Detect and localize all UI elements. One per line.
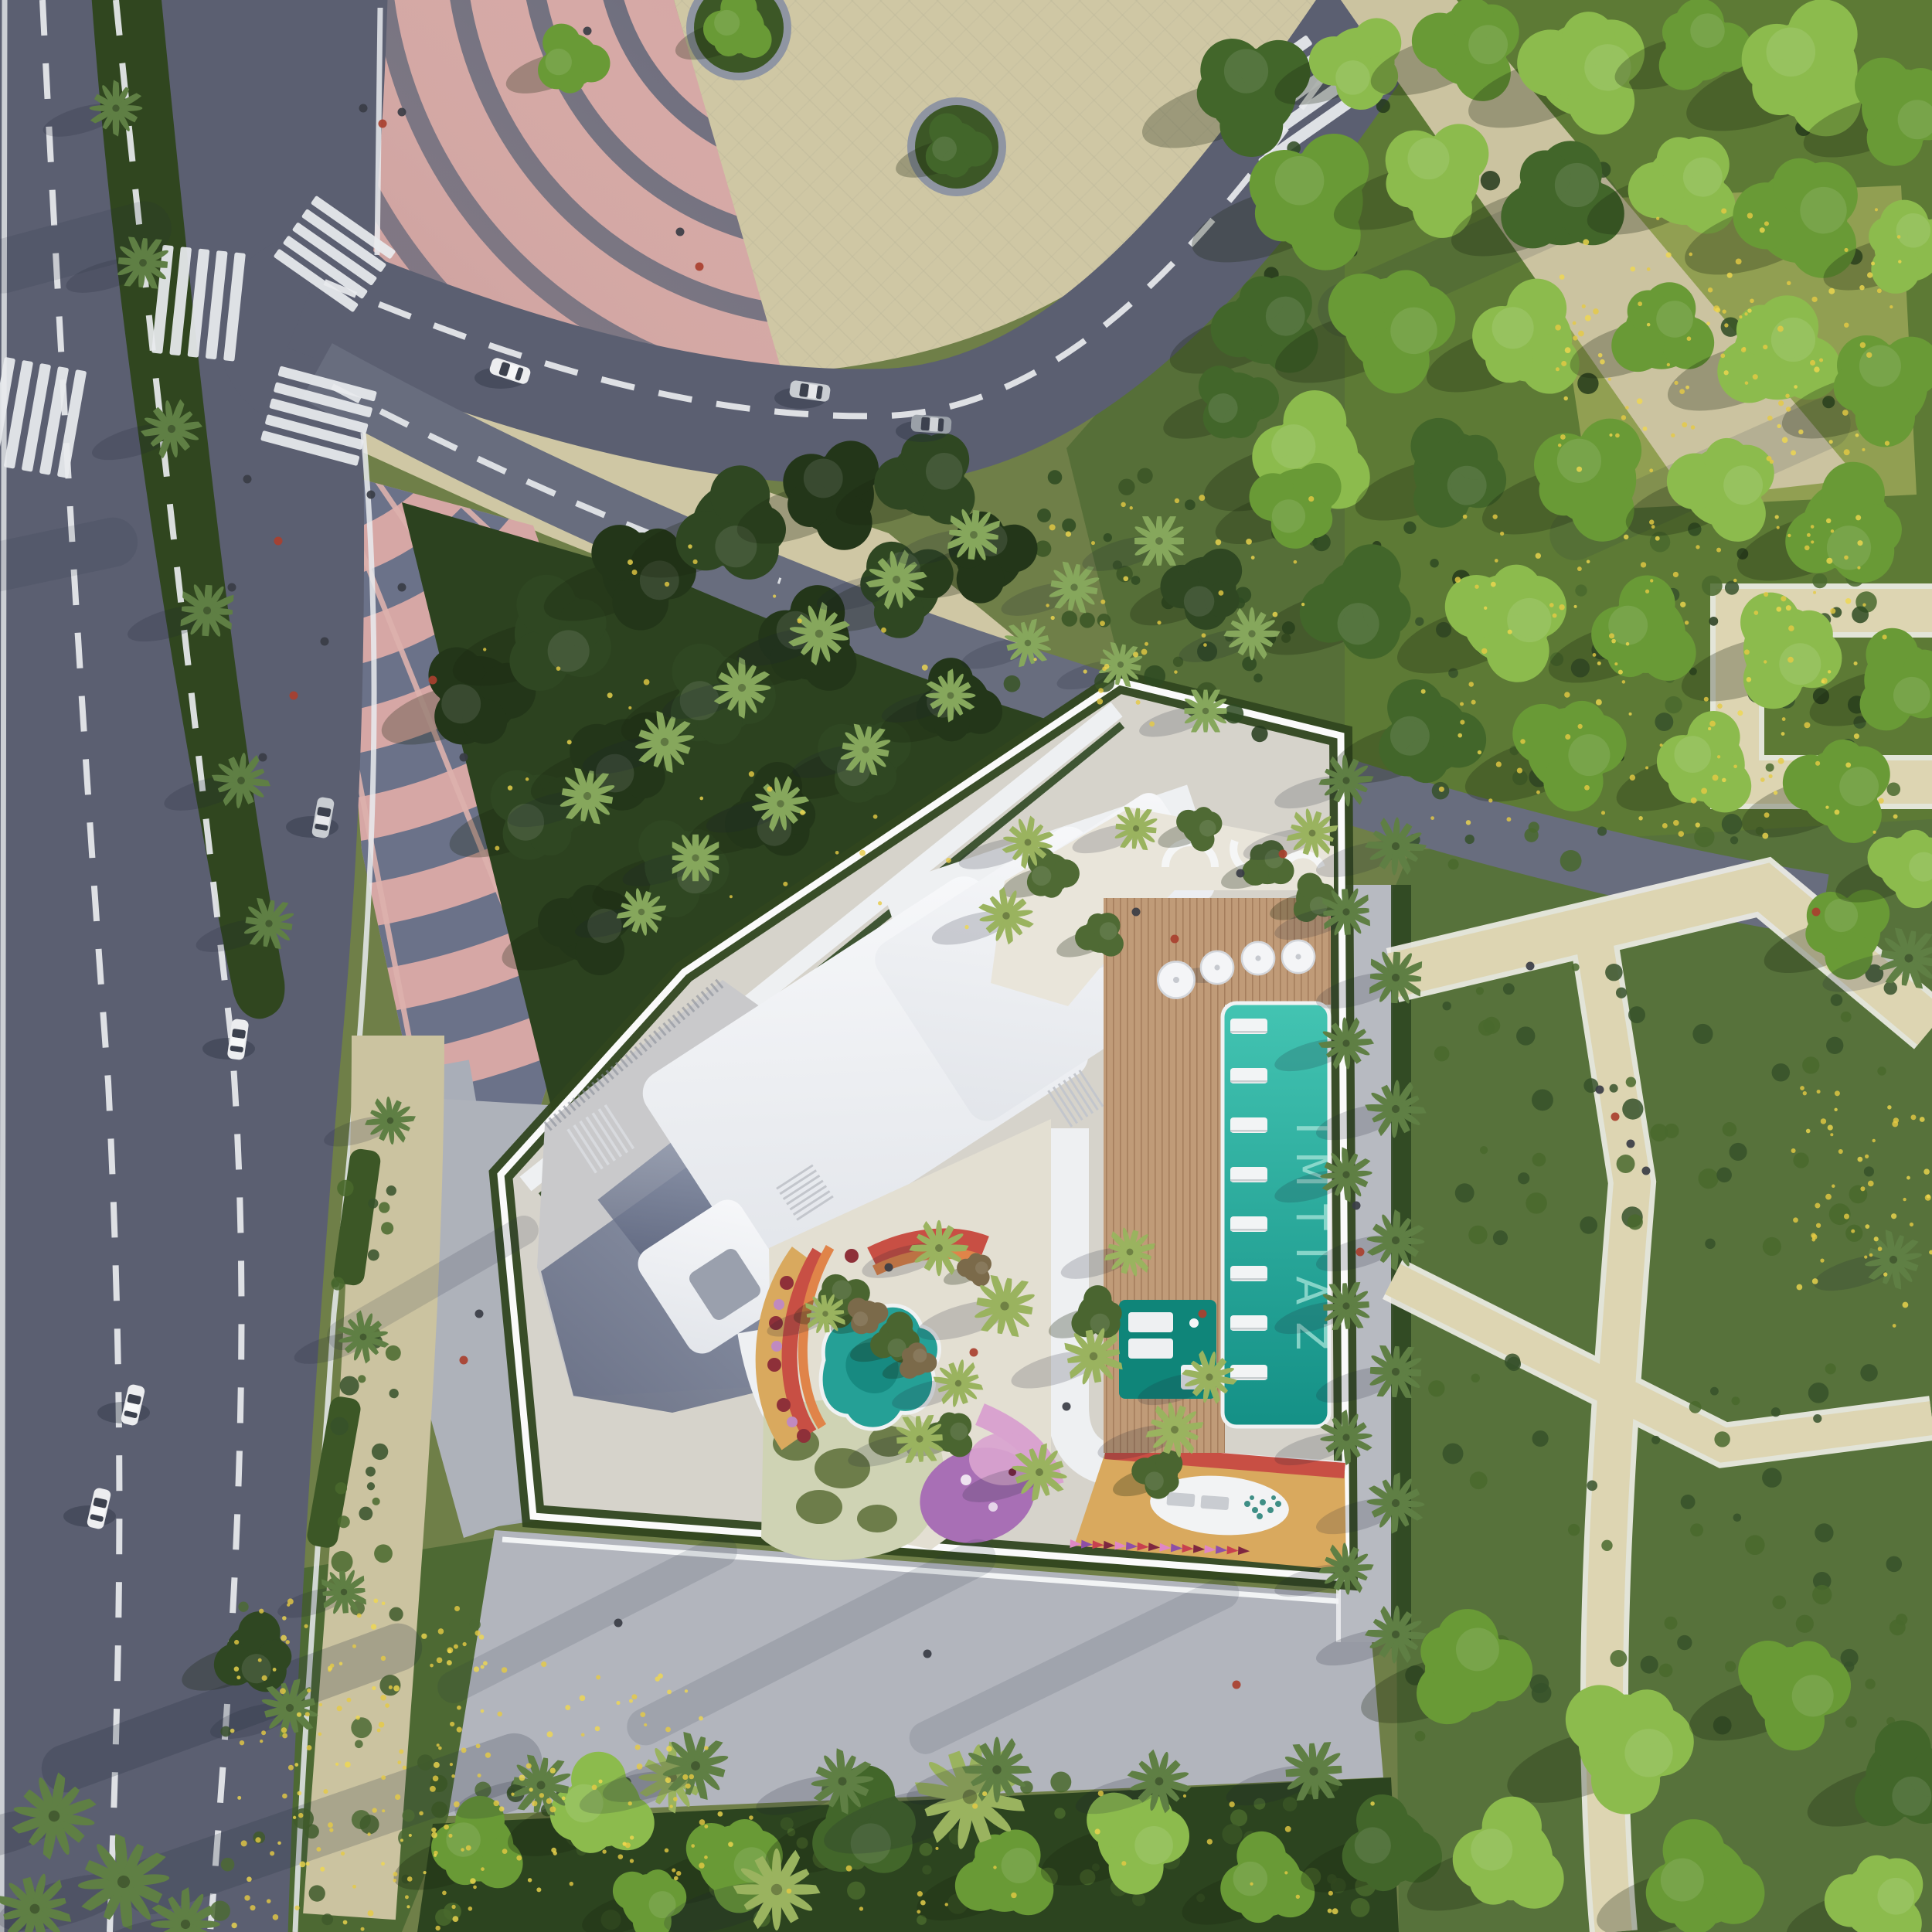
wildflower bbox=[1674, 381, 1678, 385]
wildflower bbox=[343, 1920, 348, 1925]
wildflower bbox=[1803, 1091, 1807, 1095]
wildflower bbox=[261, 1730, 266, 1735]
shrub bbox=[1532, 1089, 1553, 1111]
shrub bbox=[1080, 613, 1095, 628]
person bbox=[398, 108, 406, 117]
wildflower bbox=[846, 1866, 852, 1872]
shrub bbox=[470, 1619, 481, 1630]
shrub bbox=[1690, 1523, 1703, 1536]
wildflower bbox=[1717, 755, 1720, 758]
wildflower bbox=[1724, 370, 1729, 375]
wildflower bbox=[462, 1642, 466, 1646]
wildflower bbox=[1864, 1255, 1867, 1258]
wildflower bbox=[685, 1784, 691, 1789]
wildflower bbox=[1183, 1794, 1186, 1798]
wildflower bbox=[1370, 1801, 1375, 1806]
shrub bbox=[335, 1482, 348, 1495]
wildflower bbox=[917, 1891, 923, 1896]
wildflower bbox=[1615, 434, 1620, 438]
wildflower bbox=[1721, 208, 1726, 213]
wildflower bbox=[1097, 699, 1103, 705]
wildflower bbox=[1121, 1861, 1126, 1866]
wildflower bbox=[551, 1848, 556, 1853]
wildflower bbox=[298, 1791, 302, 1796]
shrub bbox=[1351, 1898, 1370, 1917]
shrub bbox=[1144, 665, 1165, 687]
wildflower bbox=[1872, 1139, 1875, 1142]
shrub bbox=[1716, 1168, 1732, 1183]
wildflower bbox=[1471, 700, 1476, 705]
wildflower bbox=[1811, 540, 1814, 543]
wildflower bbox=[1785, 393, 1790, 398]
wildflower bbox=[473, 1886, 477, 1889]
shrub bbox=[1518, 1172, 1529, 1184]
wildflower bbox=[1596, 699, 1602, 706]
wildflower bbox=[946, 858, 951, 863]
wildflower bbox=[1100, 600, 1105, 604]
wildflower bbox=[1577, 467, 1582, 472]
wildflower bbox=[1696, 545, 1699, 549]
wildflower bbox=[241, 1840, 247, 1846]
wildflower bbox=[922, 665, 928, 671]
wildflower bbox=[632, 570, 638, 575]
shrub bbox=[381, 1222, 393, 1234]
wildflower bbox=[1747, 677, 1752, 682]
wildflower bbox=[1786, 406, 1791, 411]
wildflower bbox=[1782, 717, 1786, 721]
shrub bbox=[1651, 1436, 1660, 1444]
wildflower bbox=[699, 1716, 703, 1721]
wildflower bbox=[1869, 1253, 1873, 1257]
wildflower bbox=[1593, 308, 1599, 315]
wildflower bbox=[580, 1696, 586, 1702]
wildflower bbox=[294, 1906, 299, 1910]
shrub bbox=[386, 1345, 401, 1361]
wildflower bbox=[407, 1876, 413, 1882]
wildflower bbox=[1680, 602, 1685, 607]
wildflower bbox=[281, 1635, 287, 1641]
shrub bbox=[1529, 821, 1539, 832]
wildflower bbox=[409, 1834, 412, 1837]
wildflower bbox=[1920, 1117, 1925, 1122]
shrub bbox=[1478, 1019, 1495, 1036]
wildflower bbox=[541, 1662, 546, 1667]
wildflower bbox=[749, 1815, 753, 1820]
wildflower bbox=[1583, 239, 1589, 245]
wildflower bbox=[682, 1774, 688, 1780]
wildflower bbox=[1860, 1186, 1865, 1191]
shrub bbox=[358, 1375, 366, 1383]
wildflower bbox=[667, 1689, 672, 1694]
shrub bbox=[1230, 1809, 1247, 1826]
shrub bbox=[1503, 983, 1515, 995]
wildflower bbox=[352, 1885, 356, 1889]
wildflower bbox=[403, 1766, 406, 1770]
wildflower bbox=[1778, 400, 1784, 406]
wildflower bbox=[547, 1731, 553, 1737]
wildflower bbox=[717, 1811, 723, 1817]
shrub bbox=[1132, 1893, 1145, 1906]
wildflower bbox=[237, 1796, 241, 1800]
wildflower bbox=[382, 1809, 385, 1812]
wildflower bbox=[1927, 1194, 1930, 1198]
shrub bbox=[1532, 1430, 1549, 1447]
wildflower bbox=[1812, 1234, 1818, 1240]
wildflower bbox=[405, 1895, 409, 1899]
wildflower bbox=[1660, 743, 1663, 747]
wildflower bbox=[1777, 424, 1781, 428]
wildflower bbox=[372, 1808, 376, 1812]
wildflower bbox=[1708, 727, 1711, 730]
wildflower bbox=[1649, 519, 1654, 524]
shrub bbox=[1251, 726, 1267, 742]
shrub bbox=[1730, 836, 1738, 844]
wildflower bbox=[1141, 649, 1148, 655]
shrub bbox=[1710, 1387, 1719, 1396]
wildflower bbox=[1704, 697, 1709, 702]
wildflower bbox=[397, 1760, 401, 1764]
wildflower bbox=[1484, 607, 1487, 610]
shrub bbox=[1699, 1168, 1719, 1189]
wildflower bbox=[1460, 702, 1464, 706]
shrub bbox=[402, 1809, 414, 1821]
wildflower bbox=[607, 692, 613, 698]
shrub bbox=[1403, 522, 1416, 534]
wildflower bbox=[1903, 1198, 1906, 1201]
wildflower bbox=[1825, 805, 1828, 808]
shrub bbox=[1808, 1383, 1829, 1403]
shrub bbox=[1689, 1401, 1702, 1413]
shrub bbox=[331, 1277, 344, 1290]
person bbox=[429, 676, 437, 685]
shrub bbox=[1455, 1183, 1475, 1202]
wildflower bbox=[1455, 577, 1461, 583]
wildflower bbox=[1753, 374, 1758, 379]
wildflower bbox=[270, 1851, 274, 1855]
wildflower bbox=[1584, 785, 1590, 791]
wildflower bbox=[797, 618, 801, 623]
wildflower bbox=[1727, 273, 1733, 278]
shrub bbox=[1242, 657, 1257, 672]
wildflower bbox=[435, 1926, 440, 1930]
shrub bbox=[1723, 1122, 1737, 1137]
wildflower bbox=[685, 1689, 688, 1692]
wildflower bbox=[1130, 506, 1133, 509]
wildflower bbox=[1760, 777, 1765, 782]
wildflower bbox=[1775, 515, 1779, 519]
wildflower bbox=[393, 1879, 396, 1883]
wildflower bbox=[1563, 396, 1568, 401]
wildflower bbox=[423, 1871, 426, 1874]
wildflower bbox=[1832, 1185, 1835, 1189]
wildflower bbox=[382, 1601, 386, 1605]
person bbox=[460, 1356, 468, 1365]
wildflower bbox=[1898, 260, 1901, 263]
wildflower bbox=[1787, 657, 1794, 663]
wildflower bbox=[1643, 427, 1648, 431]
wildflower bbox=[399, 1749, 403, 1753]
wildflower bbox=[1860, 342, 1866, 348]
wildflower bbox=[379, 1722, 385, 1728]
wildflower bbox=[1724, 323, 1728, 327]
wildflower bbox=[1825, 1194, 1832, 1200]
wildflower bbox=[1844, 1214, 1849, 1219]
wildflower bbox=[728, 1842, 733, 1847]
wildflower bbox=[704, 1855, 708, 1859]
shrub bbox=[1860, 1364, 1877, 1381]
wildflower bbox=[1585, 315, 1591, 321]
wildflower bbox=[635, 1745, 641, 1750]
person bbox=[614, 1619, 623, 1628]
wildflower bbox=[1328, 1891, 1333, 1896]
shrub bbox=[238, 1602, 248, 1612]
wildflower bbox=[434, 1762, 440, 1768]
wildflower bbox=[1781, 732, 1785, 736]
person bbox=[228, 583, 236, 592]
shrub bbox=[1468, 1226, 1487, 1244]
wildflower bbox=[1857, 540, 1862, 546]
wildflower bbox=[1104, 664, 1110, 669]
person bbox=[379, 120, 387, 128]
wildflower bbox=[1573, 335, 1577, 340]
shrub bbox=[386, 1185, 396, 1196]
wildflower bbox=[1774, 791, 1777, 794]
wildflower bbox=[282, 1733, 287, 1739]
shrub bbox=[293, 1808, 314, 1829]
wildflower bbox=[1202, 633, 1206, 638]
person bbox=[359, 104, 368, 113]
person bbox=[259, 753, 267, 762]
wildflower bbox=[1691, 425, 1695, 429]
wildflower bbox=[964, 925, 968, 929]
shrub bbox=[1887, 782, 1901, 796]
wildflower bbox=[345, 1762, 351, 1768]
wildflower bbox=[1892, 1121, 1898, 1127]
wildflower bbox=[1564, 692, 1570, 697]
wildflower bbox=[1556, 367, 1560, 371]
wildflower bbox=[1691, 798, 1697, 804]
wildflower bbox=[1878, 798, 1883, 804]
wildflower bbox=[773, 594, 776, 597]
wildflower bbox=[1629, 713, 1632, 716]
wildflower bbox=[1747, 308, 1751, 312]
wildflower bbox=[935, 1847, 938, 1850]
shrub bbox=[1560, 850, 1582, 872]
wildflower bbox=[1911, 1114, 1917, 1120]
wildflower bbox=[497, 1712, 502, 1717]
shrub bbox=[1896, 1614, 1907, 1625]
wildflower bbox=[361, 1927, 365, 1931]
wildflower bbox=[1874, 1236, 1879, 1241]
wildflower bbox=[1887, 1105, 1891, 1109]
person bbox=[1236, 869, 1245, 878]
shrub bbox=[847, 1882, 865, 1900]
shrub bbox=[1852, 607, 1869, 624]
shrub bbox=[1434, 1046, 1450, 1062]
shrub bbox=[1628, 1006, 1645, 1023]
person bbox=[1611, 1113, 1620, 1121]
wildflower bbox=[1777, 526, 1780, 529]
person bbox=[475, 1310, 484, 1318]
shrub bbox=[1772, 1595, 1786, 1609]
wildflower bbox=[1284, 1871, 1287, 1874]
wildflower bbox=[749, 771, 754, 777]
shrub bbox=[1605, 964, 1622, 981]
wildflower bbox=[481, 1867, 485, 1871]
wildflower bbox=[330, 1663, 334, 1667]
wildflower bbox=[1875, 208, 1878, 211]
wildflower bbox=[1903, 1302, 1909, 1308]
wildflower bbox=[532, 1801, 537, 1806]
wildflower bbox=[549, 1806, 556, 1812]
wildflower bbox=[234, 1666, 240, 1672]
wildflower bbox=[1744, 649, 1750, 655]
wildflower bbox=[1555, 325, 1561, 331]
wildflower bbox=[704, 1825, 708, 1828]
person bbox=[1171, 935, 1179, 944]
wildflower bbox=[1647, 323, 1651, 327]
wildflower bbox=[1821, 680, 1825, 684]
shrub bbox=[1617, 1155, 1635, 1173]
wildflower bbox=[674, 1876, 679, 1881]
shrub bbox=[1692, 1024, 1713, 1044]
wildflower bbox=[859, 1906, 863, 1910]
wildflower bbox=[293, 1816, 296, 1819]
wildflower bbox=[1478, 750, 1481, 754]
wildflower bbox=[1051, 616, 1055, 620]
wildflower bbox=[367, 1832, 370, 1835]
wildflower bbox=[1597, 662, 1601, 665]
wildflower bbox=[1815, 761, 1820, 766]
person bbox=[1812, 908, 1821, 917]
shrub bbox=[1415, 617, 1423, 626]
wildflower bbox=[1838, 1149, 1843, 1154]
wildflower bbox=[485, 1753, 491, 1758]
shrub bbox=[1665, 696, 1682, 713]
shrub bbox=[1705, 1239, 1715, 1249]
wildflower bbox=[1500, 532, 1504, 536]
wildflower bbox=[1720, 353, 1725, 358]
wildflower bbox=[431, 1828, 436, 1832]
wildflower bbox=[665, 1777, 672, 1784]
shrub bbox=[1730, 1143, 1747, 1161]
wildflower bbox=[1145, 642, 1148, 646]
wildflower bbox=[1820, 1259, 1824, 1263]
shrub bbox=[1443, 1444, 1464, 1464]
wildflower bbox=[1011, 1893, 1016, 1898]
shrub bbox=[1733, 1513, 1742, 1522]
wildflower bbox=[1862, 448, 1865, 451]
wildflower bbox=[1611, 639, 1616, 644]
wildflower bbox=[982, 1791, 987, 1796]
wildflower bbox=[1609, 434, 1612, 437]
shrub bbox=[1841, 1012, 1852, 1022]
wildflower bbox=[1133, 651, 1138, 657]
wildflower bbox=[319, 1703, 322, 1706]
person bbox=[1526, 962, 1535, 971]
wildflower bbox=[1149, 721, 1155, 726]
shrub bbox=[1812, 1585, 1832, 1604]
shrub bbox=[1771, 1407, 1781, 1417]
wildflower bbox=[1246, 539, 1252, 545]
shrub bbox=[340, 1376, 359, 1396]
wildflower bbox=[470, 1878, 476, 1884]
shrub bbox=[1448, 859, 1459, 869]
wildflower bbox=[468, 1906, 473, 1911]
shrub bbox=[1641, 1656, 1658, 1674]
shrub bbox=[1516, 1026, 1535, 1045]
wildflower bbox=[859, 850, 866, 856]
shrub bbox=[1772, 1063, 1791, 1082]
wildflower bbox=[1800, 1086, 1804, 1090]
wildflower bbox=[231, 1923, 236, 1928]
shrub bbox=[1793, 1152, 1808, 1168]
shrub bbox=[1884, 981, 1897, 995]
shrub bbox=[1722, 814, 1743, 835]
wildflower bbox=[528, 1878, 532, 1882]
wildflower bbox=[475, 1631, 481, 1636]
wildflower bbox=[1845, 598, 1852, 604]
wildflower bbox=[1708, 287, 1713, 293]
wildflower bbox=[1834, 1108, 1837, 1111]
wildflower bbox=[1804, 546, 1810, 551]
wildflower bbox=[511, 1793, 514, 1796]
shrub bbox=[1568, 1524, 1580, 1536]
shrub bbox=[1845, 1225, 1862, 1242]
wildflower bbox=[1301, 603, 1304, 606]
shrub bbox=[1062, 519, 1076, 532]
wildflower bbox=[381, 1656, 386, 1662]
wildflower bbox=[1828, 1124, 1833, 1130]
wildflower bbox=[1806, 1129, 1811, 1134]
shrub bbox=[321, 1913, 333, 1925]
shrub bbox=[1766, 764, 1774, 772]
wildflower bbox=[466, 1845, 471, 1851]
shrub bbox=[1762, 1468, 1782, 1488]
person bbox=[923, 1650, 932, 1658]
wildflower bbox=[444, 1825, 449, 1830]
shrub bbox=[417, 1754, 434, 1770]
shrub bbox=[1601, 1540, 1612, 1551]
wildflower bbox=[1851, 1230, 1855, 1233]
wildflower bbox=[1558, 444, 1562, 447]
person bbox=[583, 27, 592, 36]
wildflower bbox=[1811, 297, 1817, 302]
shrub bbox=[1118, 478, 1134, 495]
shrub bbox=[372, 1444, 388, 1460]
shrub bbox=[1796, 1615, 1814, 1633]
wildflower bbox=[1862, 603, 1866, 606]
wildflower bbox=[1559, 604, 1564, 610]
wildflower bbox=[767, 787, 772, 792]
wildflower bbox=[1098, 1791, 1104, 1796]
wildflower bbox=[1794, 385, 1798, 389]
wildflower bbox=[665, 582, 669, 587]
shrub bbox=[920, 1843, 933, 1856]
wildflower bbox=[1807, 533, 1811, 537]
wildflower bbox=[280, 1688, 286, 1694]
shrub bbox=[1815, 1523, 1833, 1542]
wildflower bbox=[993, 1866, 996, 1869]
person bbox=[1233, 1681, 1241, 1689]
wildflower bbox=[1733, 764, 1737, 768]
wildflower bbox=[483, 648, 486, 651]
wildflower bbox=[1458, 733, 1462, 738]
wildflower bbox=[1878, 1247, 1883, 1251]
wildflower bbox=[539, 1793, 544, 1798]
shrub bbox=[1626, 1077, 1636, 1087]
wildflower bbox=[438, 1628, 444, 1634]
